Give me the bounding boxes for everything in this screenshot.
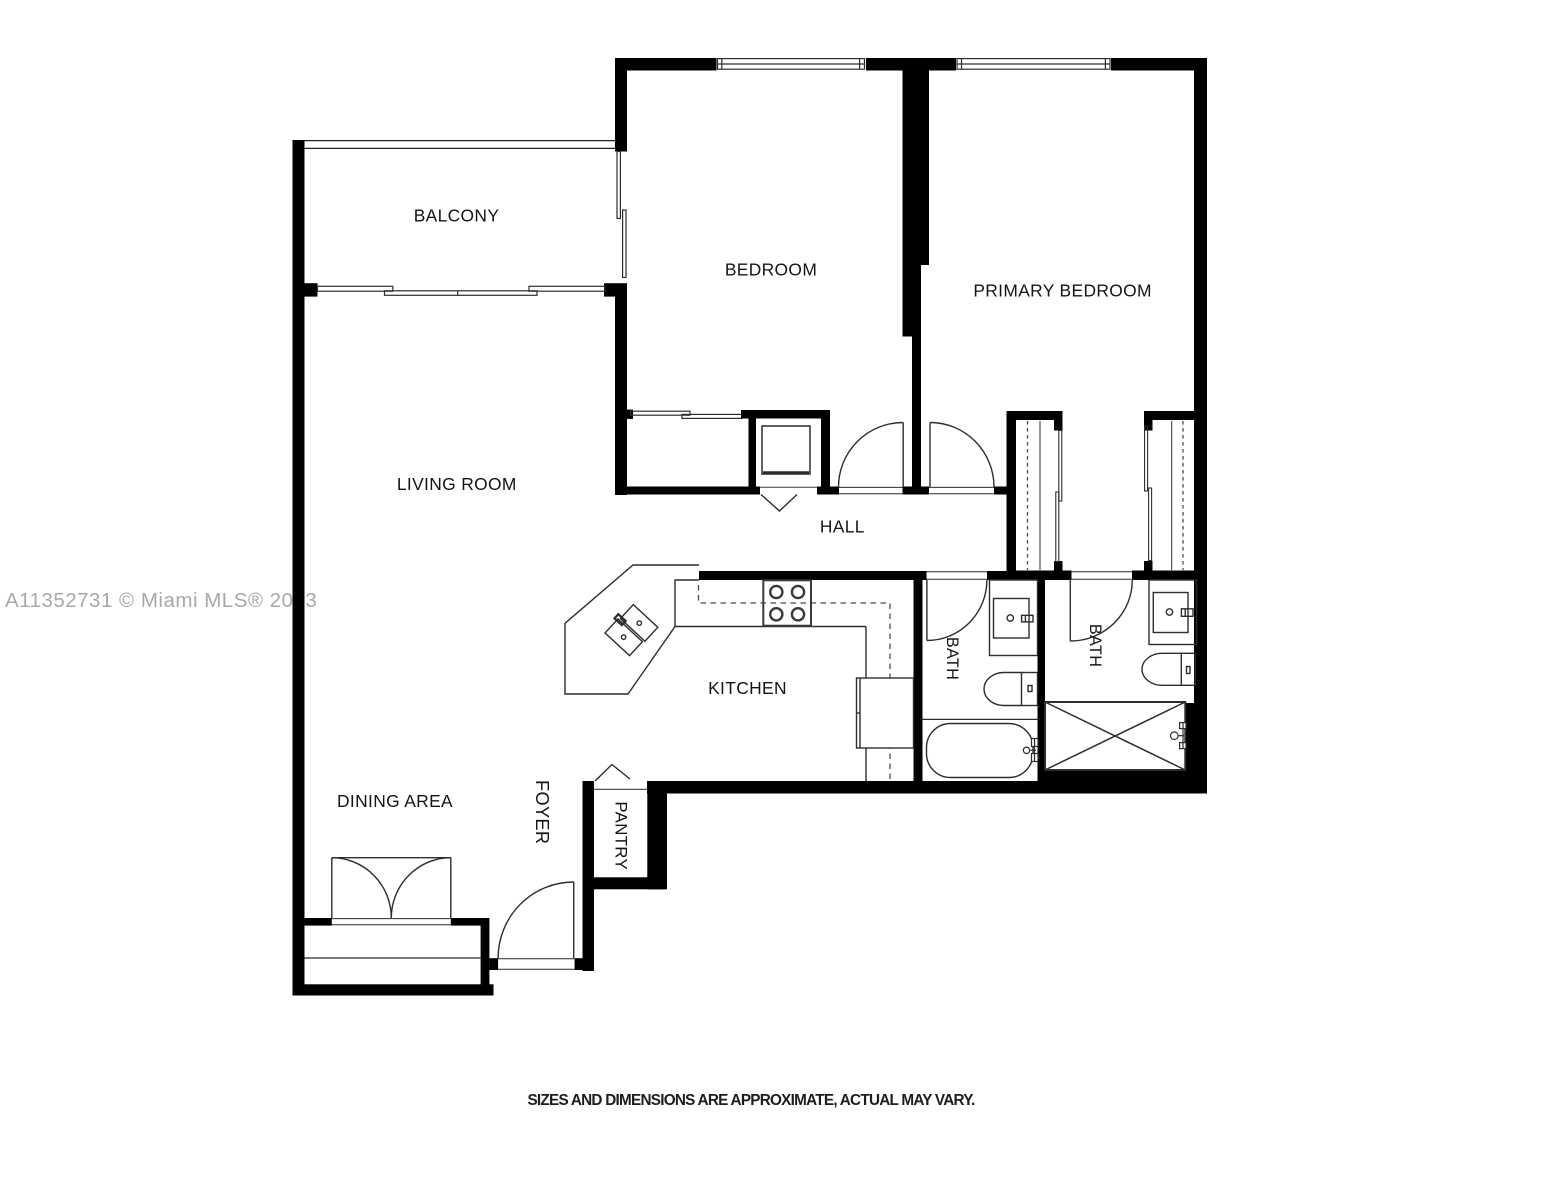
svg-text:LIVING ROOM: LIVING ROOM [397, 474, 517, 494]
svg-text:BEDROOM: BEDROOM [725, 260, 817, 280]
svg-text:SIZES AND DIMENSIONS ARE APPRO: SIZES AND DIMENSIONS ARE APPROXIMATE, AC… [527, 1092, 975, 1109]
svg-text:BALCONY: BALCONY [414, 206, 500, 226]
svg-text:KITCHEN: KITCHEN [708, 678, 787, 698]
svg-text:FOYER: FOYER [532, 780, 552, 844]
svg-text:A11352731 © Miami MLS® 2023: A11352731 © Miami MLS® 2023 [5, 589, 317, 612]
svg-text:HALL: HALL [820, 517, 865, 537]
svg-text:PANTRY: PANTRY [612, 801, 631, 870]
svg-text:BATH: BATH [1086, 624, 1104, 667]
svg-text:PRIMARY BEDROOM: PRIMARY BEDROOM [973, 280, 1152, 300]
svg-text:DINING AREA: DINING AREA [337, 791, 453, 811]
svg-text:BATH: BATH [943, 637, 961, 680]
